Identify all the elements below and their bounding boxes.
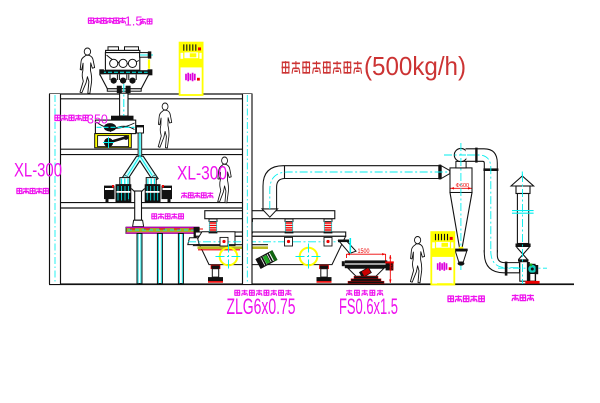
svg-text:(500kg/h): (500kg/h): [364, 51, 466, 81]
svg-text:1500: 1500: [358, 248, 370, 255]
svg-text:500: 500: [390, 262, 396, 271]
svg-text:XL-300: XL-300: [14, 161, 62, 182]
svg-text:ZLG6x0.75: ZLG6x0.75: [227, 294, 296, 319]
svg-text:350: 350: [87, 113, 108, 127]
svg-text:1.5: 1.5: [125, 14, 143, 29]
svg-text:XL-300: XL-300: [177, 164, 227, 185]
svg-text:FS0.6x1.5: FS0.6x1.5: [339, 294, 398, 319]
